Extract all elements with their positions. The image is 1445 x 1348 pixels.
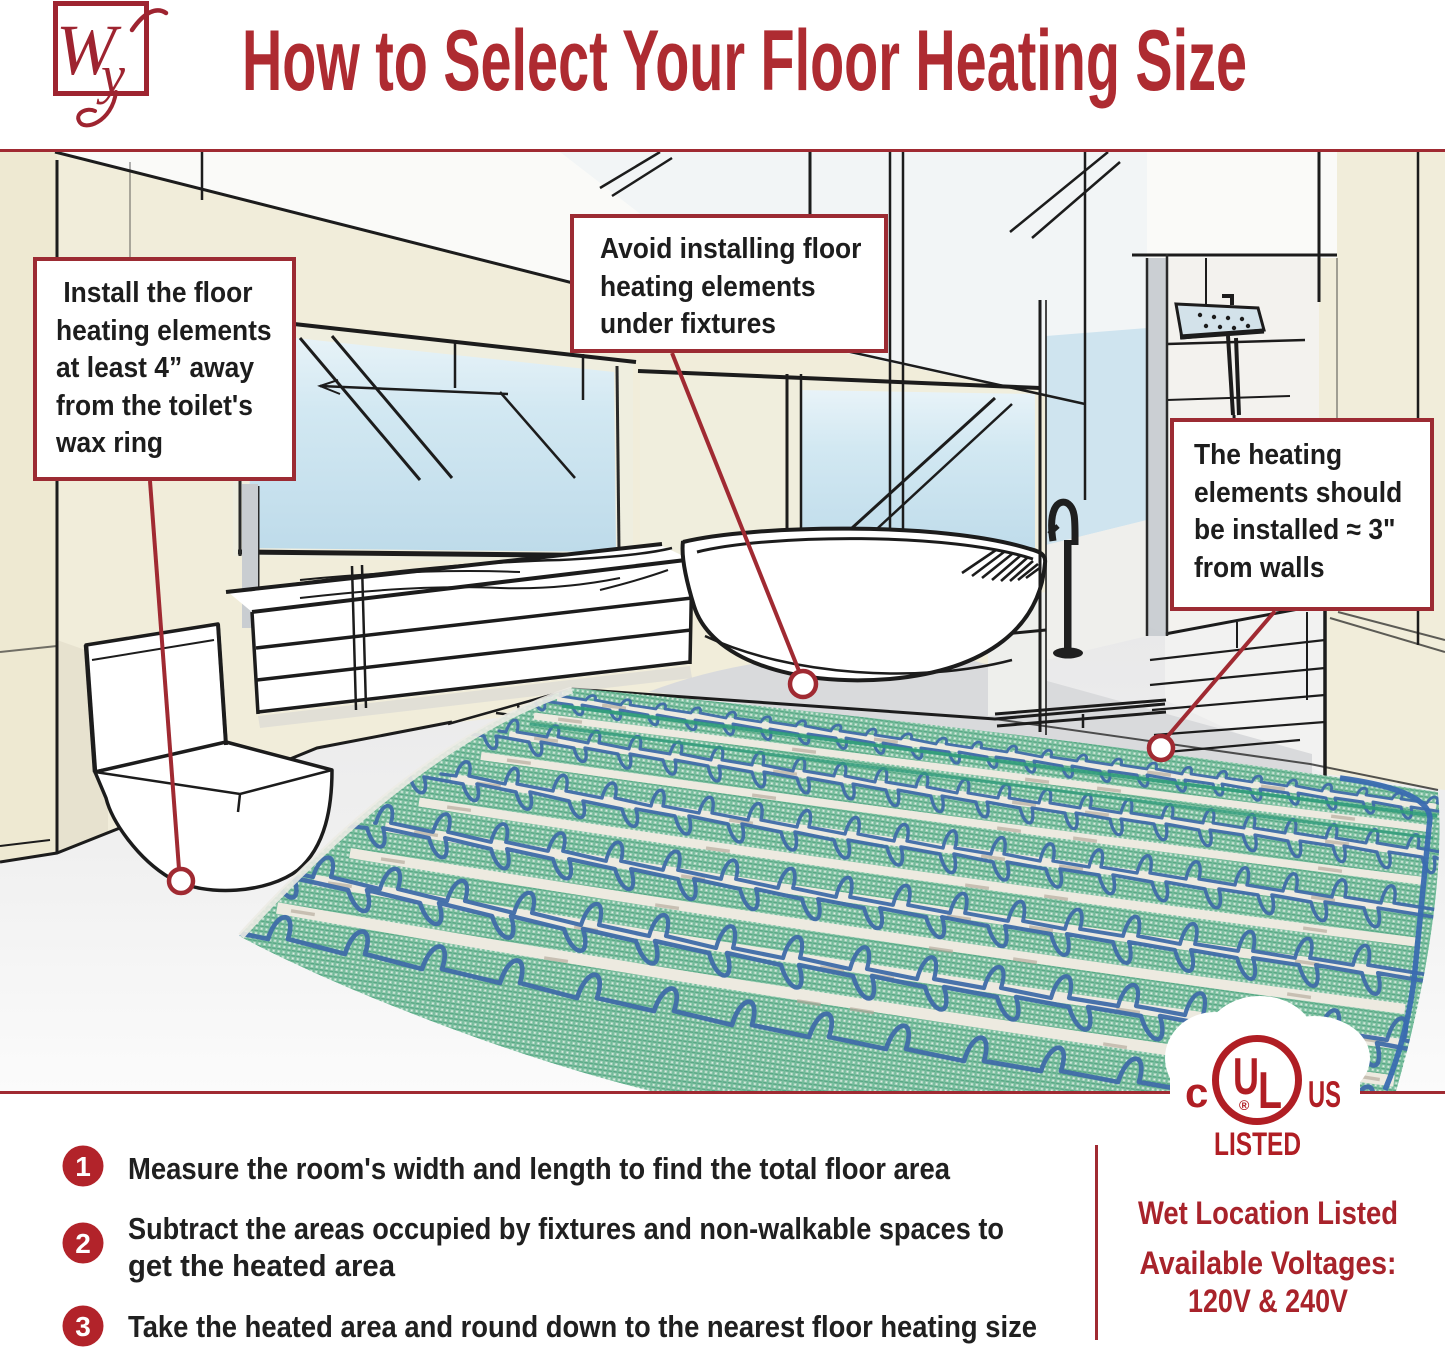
svg-text:3: 3 (75, 1311, 91, 1342)
svg-text:Available Voltages:: Available Voltages: (1140, 1245, 1397, 1281)
svg-text:Wet Location Listed: Wet Location Listed (1138, 1195, 1398, 1231)
svg-text:120V & 240V: 120V & 240V (1188, 1283, 1349, 1319)
svg-text:1: 1 (75, 1151, 91, 1182)
svg-text:Subtract the areas occupied by: Subtract the areas occupied by fixtures … (128, 1211, 1004, 1246)
svg-text:Take the heated area and round: Take the heated area and round down to t… (128, 1309, 1037, 1344)
svg-text:2: 2 (75, 1228, 91, 1259)
svg-text:get the heated area: get the heated area (128, 1248, 396, 1283)
svg-text:How to Select Your Floor Heati: How to Select Your Floor Heating Size (242, 13, 1247, 109)
svg-text:Measure the room's width and l: Measure the room's width and length to f… (128, 1151, 951, 1186)
